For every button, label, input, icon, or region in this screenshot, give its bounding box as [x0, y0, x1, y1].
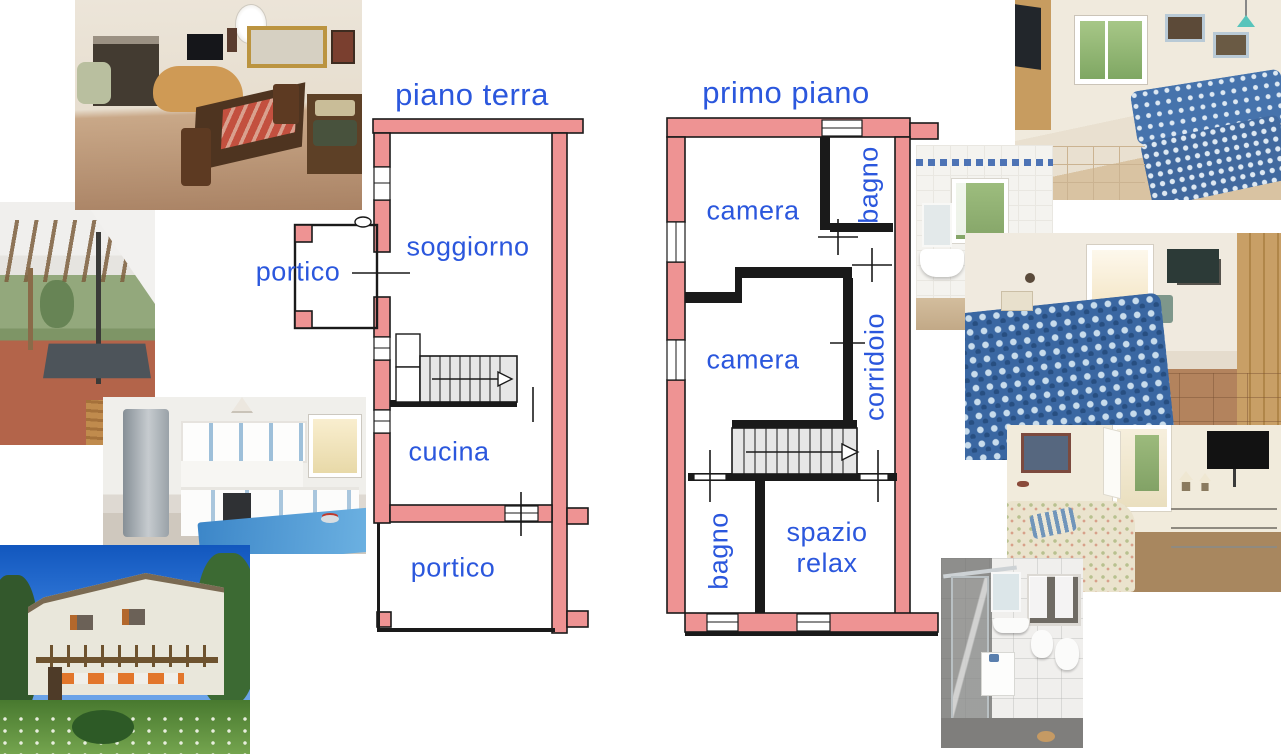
- bedside-lamp: [1025, 273, 1035, 283]
- pergola-post: [28, 268, 33, 350]
- towel: [989, 654, 999, 662]
- door: [48, 667, 62, 703]
- mirror: [991, 572, 1021, 612]
- room-label-bagno-sud: bagno: [704, 512, 735, 590]
- table-lamp: [1179, 471, 1193, 491]
- curtain: [952, 179, 966, 235]
- mirror: [247, 26, 327, 68]
- shuttered-window: [122, 609, 145, 625]
- curtain: [1029, 576, 1047, 618]
- room-label-portico-ovest: portico: [256, 257, 341, 288]
- photo-bathroom-lower: [941, 558, 1083, 748]
- tv-stand: [1233, 469, 1236, 487]
- framed-picture: [1165, 14, 1205, 42]
- framed-picture: [1213, 32, 1249, 58]
- fridge: [123, 409, 169, 537]
- tv: [1167, 249, 1219, 283]
- tv: [187, 34, 223, 60]
- room-label-soggiorno: soggiorno: [406, 232, 529, 263]
- plan-title-piano-terra: piano terra: [395, 77, 549, 113]
- grey-table: [43, 344, 151, 379]
- washbasin: [993, 618, 1029, 633]
- bush: [72, 710, 134, 744]
- tv: [1015, 4, 1041, 70]
- chair: [181, 128, 211, 186]
- table-lamp: [1199, 473, 1211, 491]
- orange-cushions: [58, 673, 184, 684]
- room-label-corridoio: corridoio: [860, 313, 891, 421]
- window-bar: [1105, 16, 1108, 84]
- dresser: [1171, 491, 1277, 549]
- bidet: [1031, 630, 1053, 658]
- room-label-camera-nord: camera: [706, 196, 799, 227]
- room-label-portico-sud: portico: [411, 553, 496, 584]
- wall-art: [331, 30, 355, 64]
- shuttered-window: [70, 615, 93, 630]
- room-label-camera-centro: camera: [706, 345, 799, 376]
- room-label-cucina: cucina: [408, 437, 489, 468]
- pendant-shade: [1237, 15, 1255, 27]
- pendant-lamp: [231, 397, 253, 413]
- pendant-lamp: [1245, 0, 1247, 16]
- open-window-pane: [1103, 427, 1121, 499]
- framed-painting: [1021, 433, 1071, 473]
- pergola-rafters: [36, 645, 218, 667]
- room-label-bagno-nord: bagno: [854, 146, 885, 224]
- floor: [941, 718, 1083, 748]
- spazio-relax-line2: relax: [796, 548, 857, 578]
- plan-title-primo-piano: primo piano: [702, 75, 869, 111]
- window: [1075, 16, 1147, 84]
- spazio-relax-line1: spazio: [786, 517, 867, 547]
- photo-twin-bedroom: [1015, 0, 1281, 200]
- wall-lamp: [1017, 481, 1029, 487]
- tv: [1207, 431, 1269, 469]
- olive-tree: [40, 280, 74, 328]
- nightstand: [1001, 291, 1033, 311]
- toilet: [1055, 638, 1079, 670]
- bath-mat: [1037, 731, 1055, 742]
- pergola-beam: [36, 657, 218, 663]
- window-view: [1135, 435, 1159, 491]
- collage-canvas: piano terra portico soggiorno cucina por…: [0, 0, 1281, 754]
- photo-exterior: [0, 545, 250, 754]
- curtain: [1055, 576, 1073, 618]
- armchair: [77, 62, 111, 104]
- room-label-spazio-relax: spazio relax: [786, 517, 867, 579]
- wall-art: [227, 28, 237, 52]
